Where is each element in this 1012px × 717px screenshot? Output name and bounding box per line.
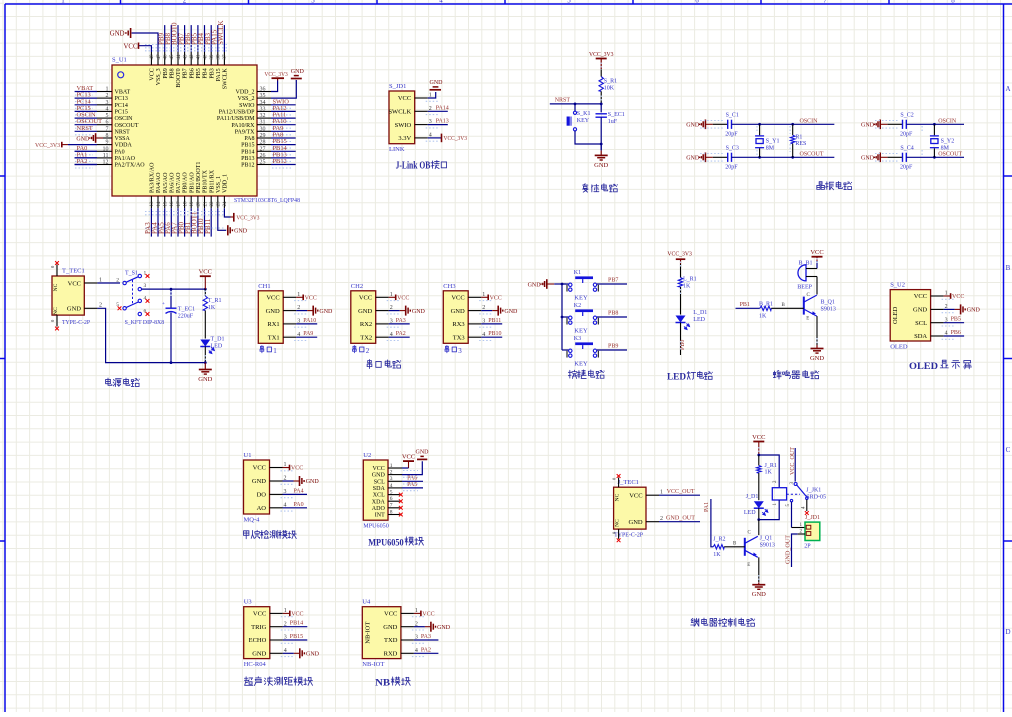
- svg-text:GND: GND: [412, 309, 426, 315]
- svg-text:GND: GND: [594, 162, 608, 169]
- svg-text:NRST: NRST: [555, 98, 571, 104]
- svg-text:GND: GND: [913, 307, 927, 314]
- svg-text:S_C1: S_C1: [726, 113, 739, 119]
- svg-text:NB-IOT: NB-IOT: [364, 622, 371, 644]
- svg-text:GND: GND: [358, 308, 372, 315]
- svg-text:PB6: PB6: [951, 330, 961, 336]
- svg-text:S_K1: S_K1: [577, 111, 591, 117]
- svg-text:47: 47: [157, 54, 162, 60]
- svg-text:SWCLK: SWCLK: [388, 109, 411, 116]
- svg-text:VDDA: VDDA: [115, 143, 133, 149]
- svg-text:PA2: PA2: [396, 331, 406, 337]
- svg-text:GND: GND: [686, 123, 700, 129]
- svg-text:VCC_3V3: VCC_3V3: [589, 51, 614, 58]
- svg-text:2: 2: [366, 347, 370, 355]
- svg-text:GND: GND: [234, 228, 248, 234]
- svg-text:CH3: CH3: [443, 283, 455, 290]
- svg-text:GND: GND: [861, 123, 875, 129]
- svg-text:3: 3: [144, 283, 147, 289]
- svg-text:VCC: VCC: [914, 293, 927, 300]
- svg-text:S_R1: S_R1: [604, 78, 617, 84]
- svg-text:SDA: SDA: [373, 486, 386, 492]
- svg-text:PB5: PB5: [951, 317, 961, 323]
- svg-text:GND_OUT: GND_OUT: [785, 535, 791, 564]
- svg-text:GND: GND: [252, 478, 266, 485]
- svg-text:PA8: PA8: [244, 136, 254, 142]
- svg-text:INT: INT: [375, 513, 385, 519]
- svg-text:GND: GND: [306, 479, 320, 485]
- svg-text:45: 45: [170, 54, 175, 60]
- svg-text:VCC_OUT: VCC_OUT: [790, 447, 796, 475]
- svg-text:NC: NC: [615, 519, 621, 527]
- svg-text:PB7: PB7: [183, 68, 189, 78]
- svg-text:14: 14: [157, 201, 162, 207]
- svg-text:PA10/RX: PA10/RX: [231, 123, 255, 129]
- svg-text:S_KFT DIP-8X8: S_KFT DIP-8X8: [125, 320, 165, 326]
- svg-text:J_TEC1: J_TEC1: [618, 479, 639, 486]
- svg-text:GND: GND: [437, 625, 451, 631]
- svg-text:GND: GND: [430, 80, 444, 86]
- svg-text:NC: NC: [53, 307, 59, 315]
- svg-text:B: B: [1006, 264, 1011, 272]
- svg-text:GND: GND: [76, 136, 90, 142]
- svg-text:T_TEC1: T_TEC1: [62, 268, 85, 275]
- svg-text:PB13: PB13: [241, 156, 254, 162]
- svg-text:20pF: 20pF: [725, 132, 738, 138]
- svg-text:PA12/USB/DP: PA12/USB/DP: [219, 110, 255, 116]
- svg-text:PA4/AO: PA4/AO: [156, 172, 162, 193]
- svg-text:PB12: PB12: [273, 158, 287, 165]
- svg-text:KEY: KEY: [574, 360, 588, 367]
- svg-text:OLED: OLED: [890, 344, 908, 351]
- svg-text:S_C3: S_C3: [726, 146, 739, 152]
- svg-text:VCC: VCC: [397, 296, 409, 302]
- svg-text:OSCIN: OSCIN: [800, 118, 819, 124]
- svg-text:38: 38: [217, 54, 222, 60]
- svg-text:PA11/USB/DM: PA11/USB/DM: [217, 116, 255, 122]
- svg-text:PC13: PC13: [115, 96, 128, 102]
- svg-text:VCC_3V3: VCC_3V3: [264, 72, 287, 78]
- svg-text:ADO: ADO: [372, 506, 386, 512]
- svg-text:E: E: [747, 563, 750, 568]
- svg-text:2: 2: [116, 278, 119, 284]
- svg-text:1K: 1K: [713, 552, 721, 558]
- svg-text:PB9: PB9: [163, 68, 169, 78]
- svg-text:VCC: VCC: [490, 296, 502, 302]
- svg-text:VDD_1: VDD_1: [223, 174, 229, 193]
- svg-text:GND: GND: [967, 308, 981, 314]
- svg-text:1: 1: [61, 0, 65, 5]
- svg-text:2P: 2P: [804, 544, 811, 550]
- svg-text:VCC: VCC: [952, 294, 964, 300]
- svg-text:L_R1: L_R1: [683, 277, 697, 283]
- svg-text:VCC: VCC: [752, 434, 765, 441]
- svg-text:42: 42: [190, 54, 195, 60]
- svg-text:MPU6050: MPU6050: [368, 538, 404, 548]
- svg-text:PA3/RX/AO: PA3/RX/AO: [150, 162, 156, 193]
- svg-text:S_U1: S_U1: [112, 57, 127, 64]
- svg-text:VCC: VCC: [384, 611, 397, 618]
- svg-text:220uF: 220uF: [178, 314, 194, 320]
- svg-text:18: 18: [183, 201, 188, 207]
- svg-text:S_C4: S_C4: [900, 146, 913, 152]
- svg-text:PA1/AO: PA1/AO: [115, 156, 136, 162]
- svg-text:6: 6: [695, 0, 699, 5]
- svg-text:19: 19: [190, 201, 195, 207]
- svg-text:PB9: PB9: [608, 344, 618, 350]
- svg-text:GND: GND: [198, 376, 212, 383]
- svg-text:U4: U4: [362, 599, 371, 606]
- svg-text:STM32F103C8T6_LQFP48: STM32F103C8T6_LQFP48: [234, 198, 300, 204]
- svg-text:TX1: TX1: [268, 334, 280, 341]
- svg-text:VCC: VCC: [398, 95, 411, 102]
- svg-text:K3: K3: [574, 336, 581, 342]
- svg-text:GND: GND: [319, 309, 333, 315]
- svg-text:VCC: VCC: [253, 465, 266, 472]
- svg-text:PB14: PB14: [241, 149, 254, 155]
- svg-text:SWCLK: SWCLK: [223, 68, 229, 90]
- svg-text:NB: NB: [375, 679, 391, 689]
- svg-text:4: 4: [439, 0, 443, 5]
- svg-text:GND: GND: [67, 306, 81, 313]
- svg-text:LED: LED: [744, 510, 756, 516]
- svg-text:VCC_3V3: VCC_3V3: [444, 136, 468, 142]
- svg-text:OLED: OLED: [909, 362, 938, 372]
- svg-text:SWCLK: SWCLK: [217, 21, 225, 46]
- svg-text:PB3: PB3: [209, 68, 215, 78]
- svg-text:PB4: PB4: [203, 68, 209, 78]
- svg-text:PA5: PA5: [407, 482, 417, 488]
- svg-text:VSSA: VSSA: [115, 136, 131, 142]
- svg-text:VCC: VCC: [305, 296, 317, 302]
- svg-text:B_Q1: B_Q1: [821, 300, 835, 306]
- svg-text:K2: K2: [574, 303, 581, 309]
- svg-text:KEY: KEY: [577, 118, 590, 124]
- svg-text:PB14: PB14: [290, 621, 303, 627]
- svg-text:J_R2: J_R2: [713, 536, 725, 542]
- svg-text:OSCOUT: OSCOUT: [115, 123, 139, 129]
- svg-text:SWIO: SWIO: [395, 122, 412, 129]
- svg-text:PA6/AO: PA6/AO: [169, 172, 175, 193]
- svg-text:VDD_2: VDD_2: [236, 90, 255, 96]
- svg-text:VCC: VCC: [629, 492, 642, 499]
- svg-text:SRD-05: SRD-05: [806, 495, 826, 501]
- svg-text:PA9: PA9: [303, 331, 313, 337]
- svg-text:VCC: VCC: [199, 269, 212, 276]
- svg-text:D: D: [1005, 628, 1010, 636]
- svg-text:HC-R04: HC-R04: [244, 661, 267, 668]
- svg-text:SCL: SCL: [915, 320, 927, 327]
- svg-text:TX2: TX2: [360, 334, 372, 341]
- svg-text:SCL: SCL: [374, 479, 385, 485]
- svg-text:BEEP: BEEP: [797, 284, 812, 290]
- svg-text:XDA: XDA: [372, 499, 386, 505]
- svg-text:8: 8: [951, 0, 955, 5]
- svg-text:PA2/TX/AO: PA2/TX/AO: [115, 163, 146, 169]
- svg-text:KEY: KEY: [574, 327, 588, 334]
- svg-text:22: 22: [210, 201, 215, 207]
- svg-text:VCC_OUT: VCC_OUT: [667, 489, 695, 495]
- svg-text:LINK: LINK: [389, 146, 405, 153]
- svg-text:VCC: VCC: [291, 612, 303, 618]
- svg-text:SWIO: SWIO: [239, 103, 255, 109]
- svg-text:PC14: PC14: [115, 103, 128, 109]
- svg-text:J_JD1: J_JD1: [805, 515, 820, 521]
- svg-text:GND: GND: [629, 519, 643, 526]
- svg-text:XCL: XCL: [373, 493, 385, 499]
- svg-text:OSCOUT: OSCOUT: [800, 151, 824, 157]
- svg-text:1K: 1K: [208, 305, 216, 311]
- svg-text:VSS_2: VSS_2: [237, 96, 254, 102]
- svg-text:PB12: PB12: [241, 163, 254, 169]
- svg-text:U3: U3: [244, 599, 252, 606]
- svg-text:RX1: RX1: [267, 321, 279, 328]
- svg-text:PB8: PB8: [608, 311, 618, 317]
- svg-text:20pF: 20pF: [725, 165, 738, 171]
- svg-text:VCC: VCC: [291, 466, 303, 472]
- svg-text:VCC: VCC: [810, 249, 823, 256]
- svg-text:46: 46: [164, 54, 169, 60]
- svg-text:GND: GND: [306, 652, 320, 658]
- svg-text:PA13: PA13: [436, 119, 449, 125]
- svg-text:LED: LED: [667, 373, 686, 383]
- svg-text:17: 17: [177, 201, 182, 207]
- svg-text:S_JD1: S_JD1: [389, 83, 406, 90]
- svg-text:SDA: SDA: [914, 333, 927, 340]
- svg-text:23: 23: [217, 201, 222, 207]
- svg-text:VCC: VCC: [253, 611, 266, 618]
- svg-text:48: 48: [150, 54, 155, 60]
- svg-text:E: E: [806, 317, 809, 322]
- svg-text:U2: U2: [363, 452, 371, 459]
- svg-text:39: 39: [210, 54, 215, 60]
- svg-text:PB1/AO: PB1/AO: [189, 172, 195, 193]
- svg-text:RXD: RXD: [384, 651, 398, 658]
- svg-text:13: 13: [150, 201, 155, 207]
- svg-text:GND: GND: [686, 156, 700, 162]
- svg-text:PA1: PA1: [704, 502, 710, 512]
- svg-text:GND: GND: [504, 309, 518, 315]
- svg-text:VCC: VCC: [372, 466, 384, 472]
- svg-text:PB10: PB10: [488, 331, 501, 337]
- svg-text:VCC: VCC: [266, 295, 279, 302]
- svg-text:ECHO: ECHO: [249, 637, 267, 644]
- svg-text:PA10: PA10: [303, 318, 316, 324]
- svg-text:1uF: 1uF: [608, 119, 618, 125]
- svg-text:VSS_1: VSS_1: [216, 176, 222, 193]
- svg-text:RX3: RX3: [452, 321, 464, 328]
- svg-text:A: A: [1005, 85, 1010, 93]
- svg-text:43: 43: [183, 54, 188, 60]
- svg-text:GND: GND: [528, 282, 542, 288]
- svg-text:NC: NC: [53, 283, 59, 291]
- svg-text:PB15: PB15: [290, 634, 303, 640]
- svg-text:VCC: VCC: [68, 281, 81, 288]
- svg-text:GND: GND: [383, 624, 397, 631]
- svg-text:S_U2: S_U2: [890, 282, 905, 289]
- svg-text:AO: AO: [257, 505, 267, 512]
- svg-text:VBAT: VBAT: [115, 90, 131, 96]
- svg-text:3.3V: 3.3V: [398, 135, 411, 142]
- svg-text:GND: GND: [451, 308, 465, 315]
- svg-text:5: 5: [567, 0, 571, 5]
- svg-text:VCC_3V3: VCC_3V3: [35, 143, 60, 149]
- svg-text:3: 3: [458, 347, 462, 355]
- svg-text:S_C2: S_C2: [900, 113, 913, 119]
- svg-text:T_D1: T_D1: [211, 337, 225, 343]
- svg-text:GND: GND: [291, 69, 305, 75]
- svg-text:RX2: RX2: [360, 321, 372, 328]
- svg-text:PA3: PA3: [421, 634, 431, 640]
- svg-text:OSCIN: OSCIN: [115, 116, 134, 122]
- svg-text:OSCIN: OSCIN: [938, 118, 957, 124]
- svg-text:KEY: KEY: [574, 294, 588, 301]
- svg-text:J_R1: J_R1: [765, 463, 777, 469]
- svg-text:C: C: [1006, 446, 1011, 454]
- svg-text:TXD: TXD: [384, 637, 398, 644]
- svg-text:PB1: PB1: [740, 302, 750, 308]
- svg-text:GND: GND: [810, 355, 824, 362]
- svg-text:8M: 8M: [766, 145, 775, 151]
- svg-text:J_Q1: J_Q1: [760, 535, 773, 541]
- svg-text:PA0: PA0: [294, 502, 304, 508]
- svg-text:L_D1: L_D1: [693, 310, 707, 316]
- svg-text:VCC: VCC: [359, 295, 372, 302]
- svg-text:10K: 10K: [604, 85, 615, 91]
- svg-text:PA14: PA14: [436, 105, 449, 111]
- svg-text:PA3: PA3: [396, 318, 406, 324]
- svg-text:PB5: PB5: [196, 68, 202, 78]
- svg-text:GND: GND: [266, 308, 280, 315]
- svg-text:B_B1: B_B1: [799, 260, 813, 266]
- svg-text:B_R1: B_R1: [759, 301, 773, 307]
- svg-text:21: 21: [203, 201, 208, 207]
- svg-text:PB0/AO: PB0/AO: [183, 172, 189, 193]
- svg-text:NRST: NRST: [77, 125, 93, 132]
- svg-text:1K: 1K: [759, 314, 767, 320]
- svg-text:PA2: PA2: [421, 647, 431, 653]
- svg-text:S_Y1: S_Y1: [766, 138, 780, 144]
- svg-text:OLED: OLED: [892, 306, 899, 324]
- svg-text:T_S1: T_S1: [125, 271, 138, 277]
- svg-text:PA5/AO: PA5/AO: [163, 172, 169, 193]
- svg-text:NRST: NRST: [115, 129, 131, 135]
- svg-text:PB15: PB15: [241, 143, 254, 149]
- svg-text:VCC_3V3: VCC_3V3: [667, 252, 692, 258]
- svg-text:15: 15: [164, 201, 169, 207]
- svg-text:VSS_3: VSS_3: [156, 68, 162, 85]
- svg-text:VCC: VCC: [150, 68, 156, 80]
- svg-text:VCC: VCC: [124, 43, 138, 50]
- svg-text:CH2: CH2: [351, 283, 363, 290]
- svg-text:PB11/RX: PB11/RX: [209, 169, 215, 193]
- svg-text:GND: GND: [252, 651, 266, 658]
- svg-text:PC15: PC15: [115, 110, 128, 116]
- svg-text:6: 6: [144, 308, 147, 314]
- svg-text:20pF: 20pF: [900, 132, 913, 138]
- svg-text:S_EC1: S_EC1: [608, 112, 625, 118]
- svg-text:16: 16: [170, 201, 175, 207]
- svg-text:PA0: PA0: [115, 149, 125, 155]
- svg-text:GND: GND: [861, 156, 875, 162]
- svg-text:VCC: VCC: [451, 295, 464, 302]
- svg-text:40: 40: [203, 54, 208, 60]
- svg-text:VCC_3V3: VCC_3V3: [236, 216, 259, 222]
- svg-text:BOOT0: BOOT0: [176, 68, 182, 87]
- svg-text:RES: RES: [795, 141, 806, 147]
- svg-text:S9013: S9013: [821, 307, 836, 313]
- svg-text:NB-IOT: NB-IOT: [362, 661, 384, 668]
- svg-text:PB2/BOOT1: PB2/BOOT1: [196, 162, 202, 193]
- svg-text:GND: GND: [416, 449, 430, 455]
- svg-text:MQ-4: MQ-4: [244, 517, 261, 524]
- svg-text:24: 24: [223, 201, 228, 207]
- svg-text:2: 2: [660, 516, 663, 522]
- svg-text:R1: R1: [795, 135, 802, 141]
- svg-text:OSCOUT: OSCOUT: [938, 151, 962, 157]
- svg-text:T_R1: T_R1: [208, 298, 222, 304]
- svg-text:J-Link OB: J-Link OB: [396, 161, 431, 172]
- svg-text:NC: NC: [615, 493, 621, 501]
- svg-text:MPU6050: MPU6050: [363, 523, 389, 530]
- svg-text:DO: DO: [257, 492, 267, 499]
- svg-text:PB7: PB7: [608, 278, 618, 284]
- svg-text:1K: 1K: [765, 470, 773, 476]
- svg-text:20pF: 20pF: [900, 165, 913, 171]
- svg-text:GND: GND: [372, 473, 386, 479]
- svg-text:U1: U1: [244, 452, 252, 459]
- svg-text:PB6: PB6: [189, 68, 195, 78]
- svg-text:PB8: PB8: [169, 68, 175, 78]
- svg-text:PA7/AO: PA7/AO: [176, 172, 182, 193]
- svg-text:GND: GND: [110, 31, 125, 38]
- svg-text:1: 1: [144, 271, 147, 277]
- svg-text:GND: GND: [752, 591, 766, 598]
- svg-text:GND_OUT: GND_OUT: [666, 515, 695, 521]
- svg-text:J_JK1: J_JK1: [806, 488, 821, 494]
- svg-text:PA15: PA15: [216, 68, 222, 81]
- svg-text:20: 20: [197, 201, 202, 207]
- svg-text:T_EC1: T_EC1: [178, 307, 195, 313]
- svg-text:PA6: PA6: [407, 475, 417, 481]
- svg-text:41: 41: [197, 54, 202, 60]
- svg-text:7: 7: [823, 0, 827, 5]
- svg-text:PA4: PA4: [294, 488, 304, 494]
- svg-text:1: 1: [273, 347, 277, 355]
- svg-text:2: 2: [183, 0, 187, 5]
- svg-text:37: 37: [223, 54, 228, 60]
- svg-text:VCC: VCC: [402, 454, 415, 461]
- svg-text:S9013: S9013: [760, 542, 775, 548]
- svg-text:+: +: [162, 302, 165, 307]
- svg-text:CH1: CH1: [258, 283, 270, 290]
- svg-text:PB10/TX: PB10/TX: [203, 169, 209, 193]
- svg-text:1K: 1K: [683, 283, 691, 289]
- svg-text:4: 4: [144, 295, 147, 301]
- svg-text:PA9/TX: PA9/TX: [235, 129, 255, 135]
- svg-text:VCC: VCC: [422, 612, 434, 618]
- svg-text:PB11: PB11: [488, 318, 501, 324]
- svg-text:J_D1: J_D1: [746, 494, 759, 500]
- svg-text:LED: LED: [211, 344, 223, 350]
- svg-text:3: 3: [311, 0, 315, 5]
- svg-text:PB11: PB11: [204, 218, 212, 234]
- svg-text:S_Y2: S_Y2: [941, 138, 955, 144]
- svg-text:PA2: PA2: [77, 158, 88, 165]
- svg-text:LED: LED: [693, 317, 705, 323]
- svg-text:44: 44: [177, 54, 182, 60]
- svg-text:K1: K1: [574, 270, 581, 276]
